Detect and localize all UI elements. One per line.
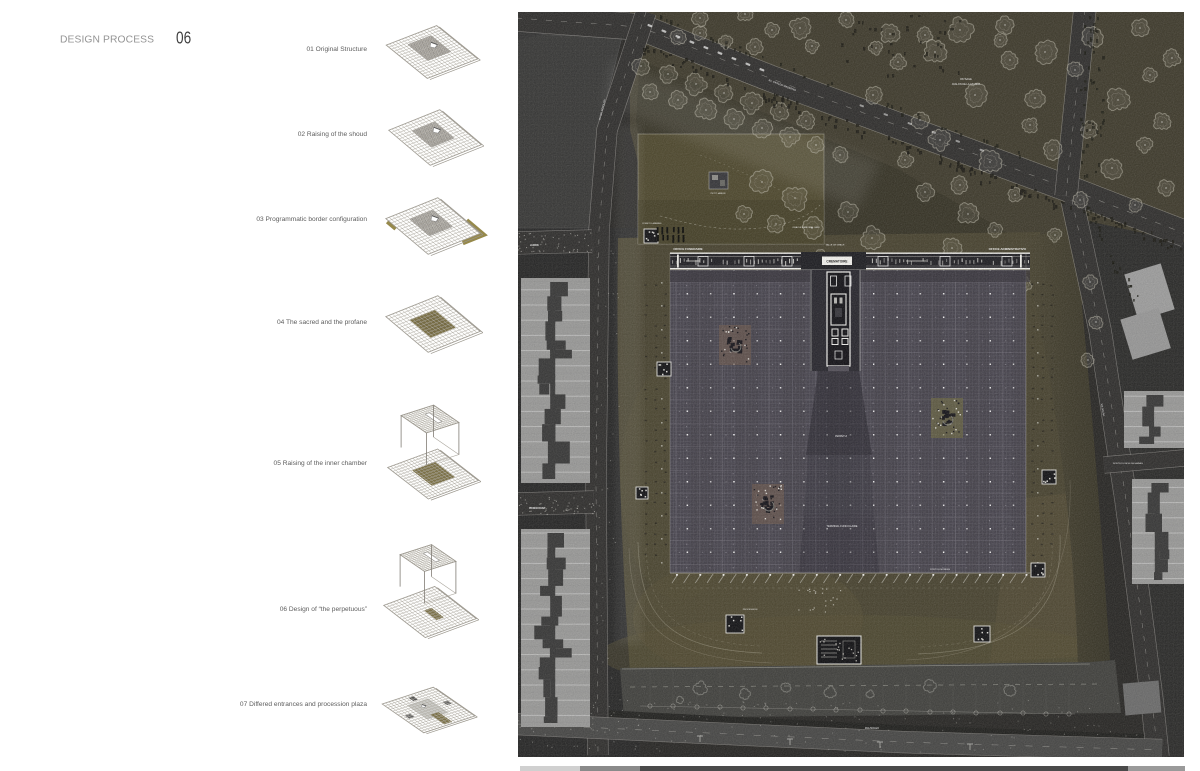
svg-text:02 Raising of the shoud: 02 Raising of the shoud xyxy=(298,131,368,138)
svg-text:04 The sacred and the profane: 04 The sacred and the profane xyxy=(277,319,367,326)
svg-text:05 Raising of the inner chambe: 05 Raising of the inner chamber xyxy=(274,460,368,467)
svg-text:03 Programmatic border configu: 03 Programmatic border configuration xyxy=(256,216,367,223)
svg-text:06: 06 xyxy=(176,29,191,48)
svg-text:07 Differed entrances and proc: 07 Differed entrances and procession pla… xyxy=(240,701,367,708)
svg-text:06 Design of “the perpetuous”: 06 Design of “the perpetuous” xyxy=(280,606,367,613)
svg-text:DESIGN PROCESS: DESIGN PROCESS xyxy=(60,35,154,46)
svg-text:01 Original Structure: 01 Original Structure xyxy=(307,46,368,53)
